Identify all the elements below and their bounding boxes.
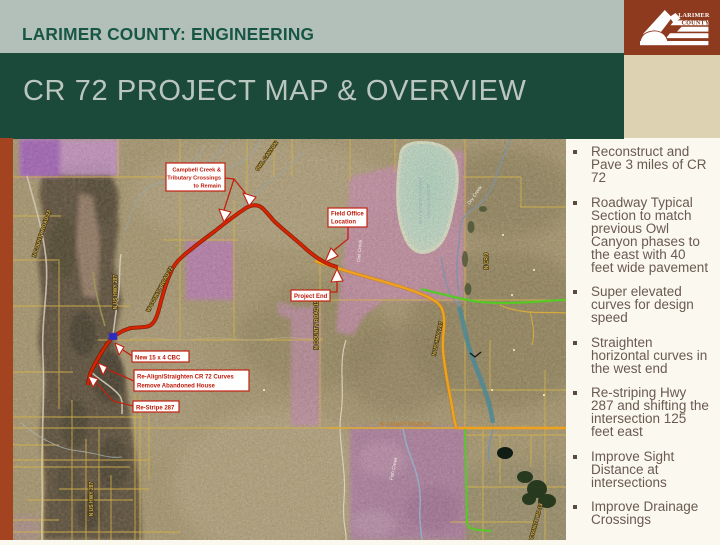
svg-text:N US HWY 287: N US HWY 287 [89,481,95,516]
svg-text:to Remain: to Remain [194,184,222,190]
svg-text:N CR 9: N CR 9 [484,253,490,270]
svg-text:LARIMER: LARIMER [678,12,710,19]
svg-text:N COUNTY ROAD 15: N COUNTY ROAD 15 [314,300,320,349]
svg-text:Re-Align/Straighten CR 72 Curv: Re-Align/Straighten CR 72 Curves [137,374,234,380]
svg-text:Tributary Crossings: Tributary Crossings [167,176,221,182]
svg-text:N US HWY 287: N US HWY 287 [113,274,119,309]
svg-text:Re-Stripe 287: Re-Stripe 287 [136,405,175,411]
svg-text:New 15 x 4 CBC: New 15 x 4 CBC [135,355,181,361]
svg-text:W COUNTY ROAD 70: W COUNTY ROAD 70 [380,422,430,428]
svg-text:COUNTY: COUNTY [681,20,709,27]
svg-text:Project End: Project End [294,294,328,300]
svg-text:Remove Abandoned House: Remove Abandoned House [137,383,215,389]
svg-text:Campbell Creek &: Campbell Creek & [172,168,221,174]
svg-text:Location: Location [331,220,356,226]
svg-text:Field Office: Field Office [331,212,364,218]
